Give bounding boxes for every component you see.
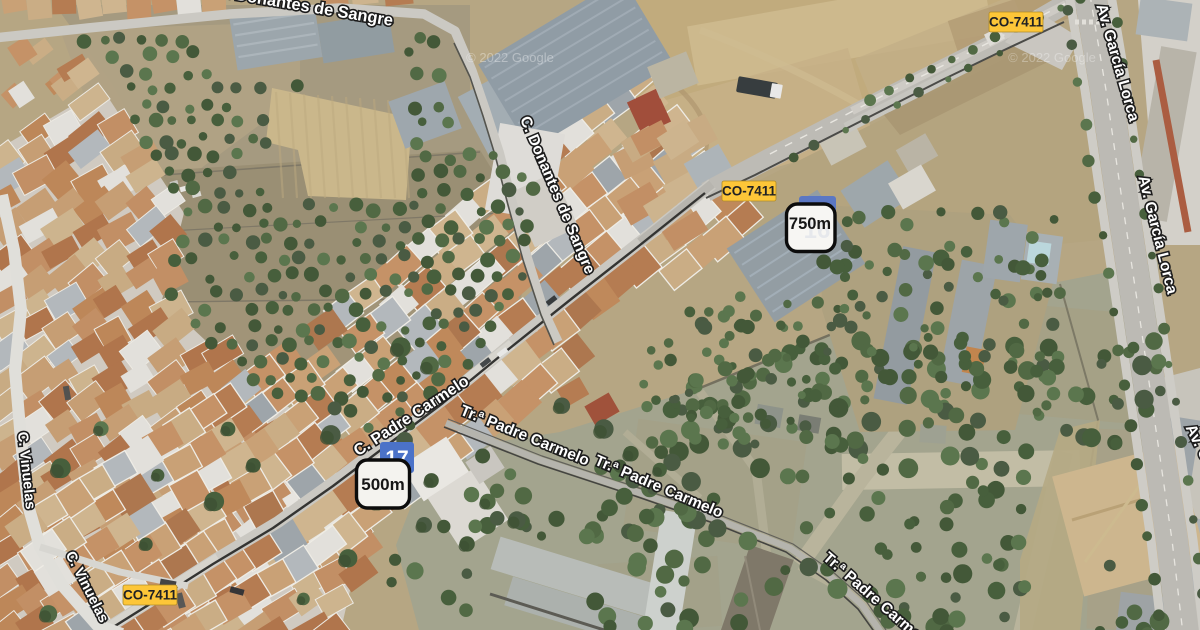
svg-text:750m: 750m bbox=[789, 215, 831, 233]
svg-text:CO-7411: CO-7411 bbox=[989, 15, 1044, 30]
svg-text:CO-7411: CO-7411 bbox=[123, 588, 178, 603]
svg-text:500m: 500m bbox=[361, 475, 404, 494]
svg-text:© 2022 Google: © 2022 Google bbox=[1008, 50, 1096, 65]
svg-text:© 2022 Google: © 2022 Google bbox=[466, 50, 554, 65]
svg-text:CO-7411: CO-7411 bbox=[722, 184, 777, 199]
